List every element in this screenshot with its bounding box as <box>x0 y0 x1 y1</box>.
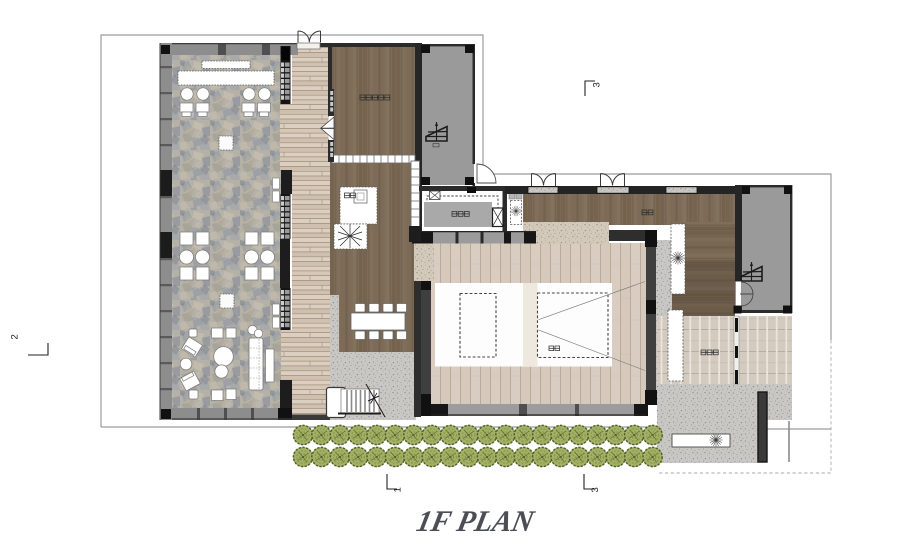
svg-text:1F PLAN: 1F PLAN <box>414 504 538 538</box>
svg-text:3: 3 <box>590 487 601 492</box>
svg-text:3: 3 <box>592 82 603 87</box>
svg-text:2: 2 <box>10 334 21 339</box>
svg-text:1: 1 <box>393 487 404 492</box>
